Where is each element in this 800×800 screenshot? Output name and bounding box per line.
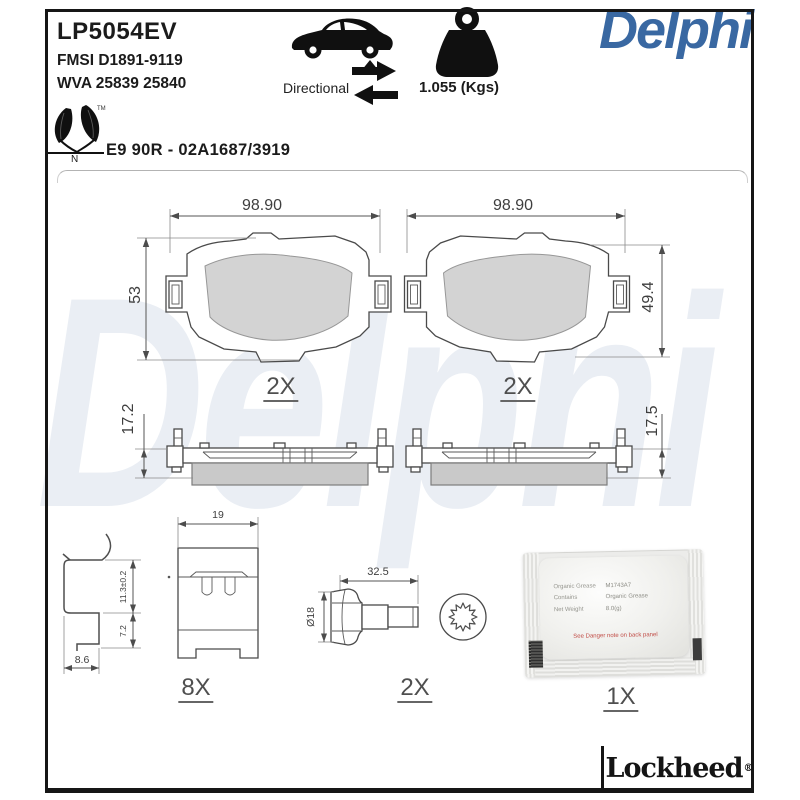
dim-clip-upper-height: 11.3±0.2 [118,571,128,603]
dim-pad-left-width: 98.90 [242,197,282,215]
dim-side-left-thickness: 17.2 [120,403,138,434]
dim-clip-base: 8.6 [75,654,90,666]
eco-n-mark: N [71,154,78,165]
delphi-logo: Delphi [560,2,752,59]
dim-clip-lower-height: 7.2 [118,625,128,637]
sachet-crimp-bottom [535,657,695,677]
sachet-row-value: 8.0(g) [606,604,622,616]
dim-pad-right-width: 98.90 [493,197,533,215]
dim-pad-left-height: 53 [127,286,145,304]
sachet-print-mark [693,638,702,660]
fmsi-code: FMSI D1891-9119 [57,52,183,70]
qty-label-clip: 8X [178,675,213,703]
dim-clip-width: 19 [212,509,224,521]
qty-label-grease: 1X [603,684,638,712]
grease-sachet-photo: Organic Grease M1743A7 Contains Organic … [523,549,706,678]
eco-tm-mark: TM [97,106,106,112]
torx-bolt-end-view [440,594,486,640]
qty-label-bolt: 2X [397,675,432,703]
dim-bolt-length: 32.5 [367,566,388,578]
approval-code: E9 90R - 02A1687/3919 [106,141,290,160]
wva-code: WVA 25839 25840 [57,75,186,93]
drawing-area-rule [57,170,748,183]
dim-bolt-diameter: Ø18 [305,607,317,627]
part-number: LP5054EV [57,18,177,46]
sachet-label-text: Organic Grease M1743A7 Contains Organic … [553,580,680,617]
qty-label-pad-left: 2X [263,374,298,402]
qty-label-pad-right: 2X [500,374,535,402]
weight-value: 1.055 (Kgs) [419,79,499,96]
eco-leaf-icon [50,104,104,154]
registered-mark: ® [744,763,753,774]
directional-arrows-icon [352,60,398,106]
datasheet-page: Delphi LP5054EV FMSI D1891-9119 WVA 2583… [0,0,800,800]
lockheed-logo: Lockheed® [601,746,754,791]
lockheed-brand-text: Lockheed [605,753,742,784]
sachet-row-value: M1743A7 [605,581,631,593]
sachet-row-label: Net Weight [554,604,606,616]
sachet-row-value: Organic Grease [606,592,649,604]
sachet-barcode-mark [529,641,544,668]
dim-pad-right-height: 49.4 [640,281,658,312]
directional-label: Directional [283,80,349,96]
dim-side-right-thickness: 17.5 [644,405,662,436]
weight-icon [427,6,507,80]
